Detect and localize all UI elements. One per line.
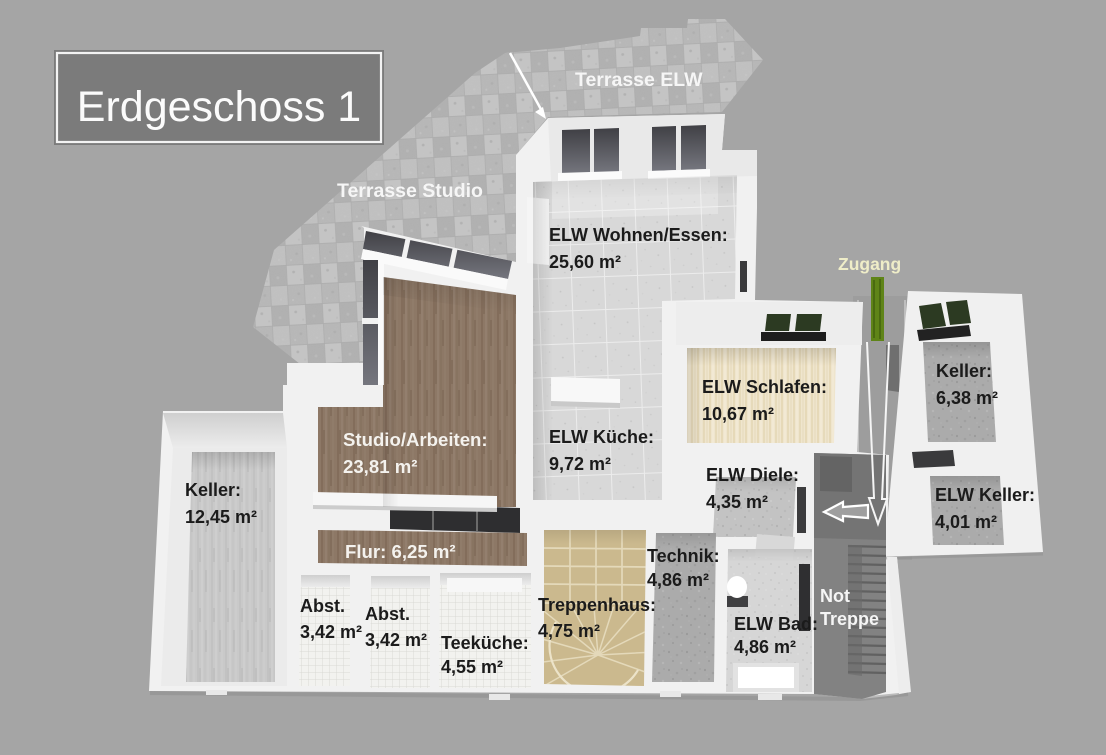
svg-text:Zugang: Zugang [838, 254, 901, 274]
svg-text:Terrasse ELW: Terrasse ELW [575, 69, 703, 91]
svg-text:Erdgeschoss 1: Erdgeschoss 1 [77, 83, 361, 131]
svg-text:Flur: 6,25 m²: Flur: 6,25 m² [345, 541, 456, 562]
svg-text:Terrasse Studio: Terrasse Studio [337, 180, 483, 202]
